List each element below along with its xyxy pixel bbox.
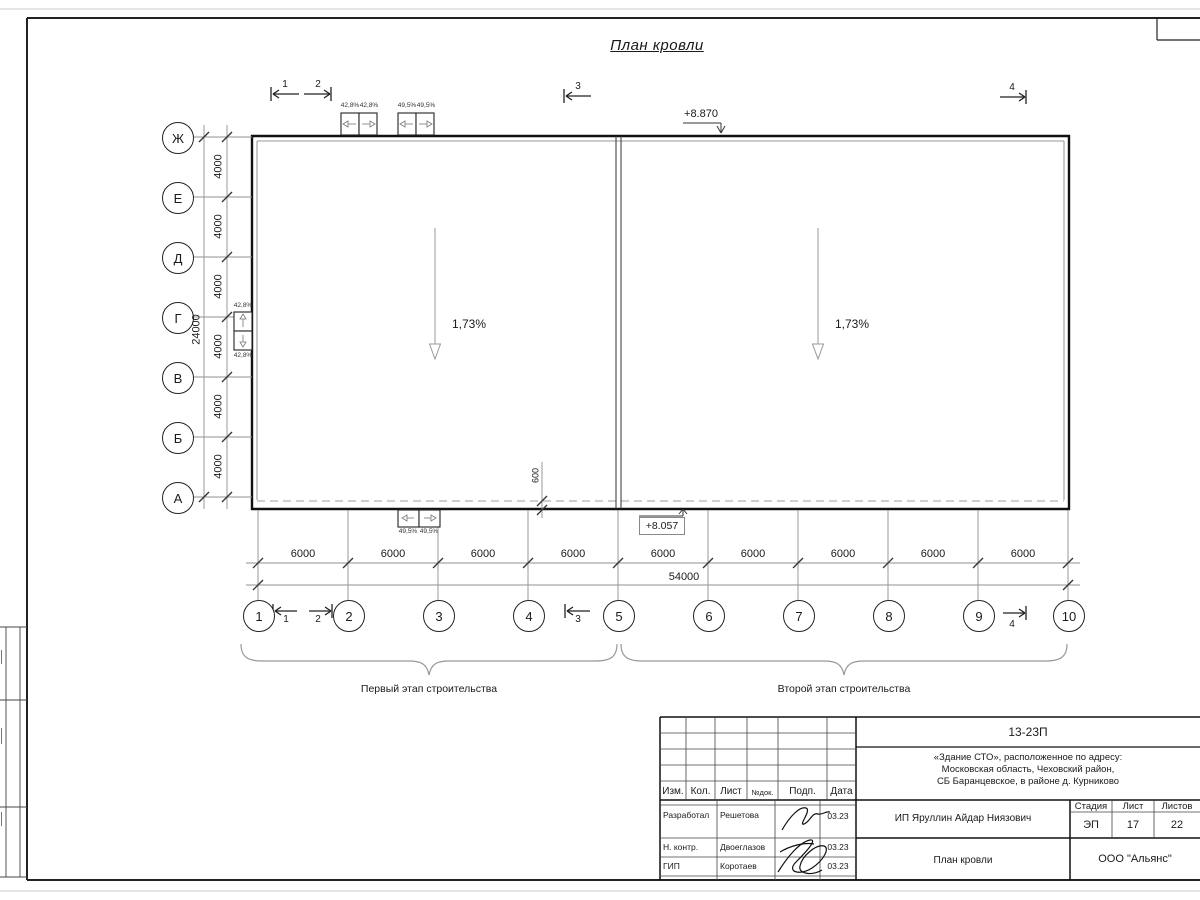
col-axis-label: 7 [795,609,802,624]
tb-date: 03.23 [822,862,854,871]
stage-label-first: Первый этап строительства [309,684,549,695]
vent-label: 42,8% [231,303,255,310]
section-number: 1 [278,615,294,625]
roof-vent-left-pair [234,312,252,350]
section-number: 4 [1004,620,1020,630]
row-axis-marker: Б [162,422,194,454]
tb-name: Решетова [720,811,772,820]
corner-doc-box [1157,18,1200,40]
col-axis-label: 1 [255,609,262,624]
row-axis-label: Ж [172,131,184,146]
dim-label: 6000 [905,549,961,560]
section-marks-bottom [273,604,1026,620]
dim-label: 6000 [275,549,331,560]
roof-vent-bottom-pair [398,510,440,527]
row-axis-marker: Д [162,242,194,274]
tb-role: ГИП [663,862,715,871]
col-axis-label: 4 [525,609,532,624]
stage-col-header: Стадия [1070,802,1112,812]
section-number: 3 [570,82,586,92]
section-marks-top [271,87,1026,104]
sheet-number: 17 [1112,820,1154,831]
sheet-col-header: Лист [1112,802,1154,812]
project-address-line3: СБ Баранцевское, в районе д. Курниково [878,777,1178,787]
col-axis-marker: 10 [1053,600,1085,632]
col-axis-label: 5 [615,609,622,624]
tb-header-podp: Подп. [778,787,827,797]
col-axis-marker: 3 [423,600,455,632]
side-stamp [0,627,27,877]
col-axis-label: 3 [435,609,442,624]
section-number: 3 [570,615,586,625]
sheet-frame [27,18,1200,880]
row-axis-label: Б [174,431,183,446]
dim-label: 4000 [214,199,225,255]
elevation-value: +8.057 [646,520,678,532]
col-axis-marker: 2 [333,600,365,632]
tb-header-kol: Кол. [686,787,715,797]
row-axis-marker: Г [162,302,194,334]
vent-label: 49,5% [417,529,441,536]
stage-value: ЭП [1070,820,1112,831]
dim-total-label: 54000 [656,572,712,583]
dim-label: 4000 [214,259,225,315]
col-axis-marker: 7 [783,600,815,632]
sheets-col-header: Листов [1154,802,1200,812]
dim-label: 6000 [365,549,421,560]
col-axis-marker: 8 [873,600,905,632]
dim-label: 4000 [214,319,225,375]
company-name: ООО "Альянс" [1070,854,1200,865]
row-axis-marker: Ж [162,122,194,154]
dimension-ticks [199,132,1073,590]
stage-label-second: Второй этап строительства [724,684,964,695]
col-axis-marker: 5 [603,600,635,632]
dimension-lines [192,125,1080,600]
tb-header-list: Лист [715,787,747,797]
col-axis-label: 2 [345,609,352,624]
tb-header-ndok: №док. [747,789,778,797]
slope-arrow-left [430,228,441,359]
section-number: 1 [277,80,293,90]
col-axis-label: 6 [705,609,712,624]
row-axis-label: А [174,491,183,506]
col-axis-label: 8 [885,609,892,624]
tb-header-izm: Изм. [660,787,686,797]
project-address-line2: Московская область, Чеховский район, [878,765,1178,775]
tb-date: 03.23 [822,812,854,821]
col-axis-marker: 4 [513,600,545,632]
tb-name: Двоеглазов [720,843,772,852]
elevation-leader-top [683,123,725,133]
row-axis-label: Д [174,251,183,266]
dim-label: 6000 [725,549,781,560]
tb-header-data: Дата [827,787,856,797]
tb-role: Разработал [663,811,715,820]
col-axis-label: 9 [975,609,982,624]
roof-outline [251,135,1070,510]
row-axis-marker: В [162,362,194,394]
tb-role: Н. контр. [663,843,715,852]
client-name: ИП Яруллин Айдар Ниязович [858,814,1068,824]
dim-label: 6000 [545,549,601,560]
row-axis-marker: Е [162,182,194,214]
dim-label: 6000 [635,549,691,560]
dim-label: 4000 [214,439,225,495]
tb-name: Коротаев [720,862,772,871]
vent-label: 42,8% [231,353,255,360]
section-number: 4 [1004,83,1020,93]
row-axis-label: Е [174,191,183,206]
row-axis-label: В [174,371,183,386]
eave-offset-label: 600 [532,456,541,496]
vent-label: 49,5% [414,103,438,110]
row-axis-label: Г [174,311,181,326]
slope-label: 1,73% [447,318,491,330]
sheets-total: 22 [1154,820,1200,831]
dim-label: 4000 [214,139,225,195]
section-number: 2 [310,80,326,90]
roof-vent-top-pair2 [398,113,434,135]
row-axis-marker: А [162,482,194,514]
dim-label: 4000 [214,379,225,435]
stage-braces [241,644,1067,675]
dim-label: 6000 [995,549,1051,560]
col-axis-marker: 1 [243,600,275,632]
slope-label: 1,73% [830,318,874,330]
col-axis-marker: 6 [693,600,725,632]
col-axis-label: 10 [1062,609,1076,624]
dim-total-label: 24000 [192,300,203,360]
page-title: План кровли [577,38,737,53]
slope-arrow-right [813,228,824,359]
col-axis-marker: 9 [963,600,995,632]
doc-number: 13-23П [928,726,1128,738]
drawing-title-cell: План кровли [858,856,1068,866]
project-address-line1: «Здание СТО», расположенное по адресу: [878,753,1178,763]
section-number: 2 [310,615,326,625]
elevation-label-bottom: +8.057 [639,517,685,535]
vent-label: 42,8% [357,103,381,110]
tb-date: 03.23 [822,843,854,852]
dim-label: 6000 [455,549,511,560]
elevation-label-top: +8.870 [671,109,731,120]
drawing-sheet: План кровли Ж Е Д Г В Б А 1 2 3 4 5 6 7 … [0,0,1200,900]
dim-label: 6000 [815,549,871,560]
roof-vent-top-pair1 [341,113,377,135]
